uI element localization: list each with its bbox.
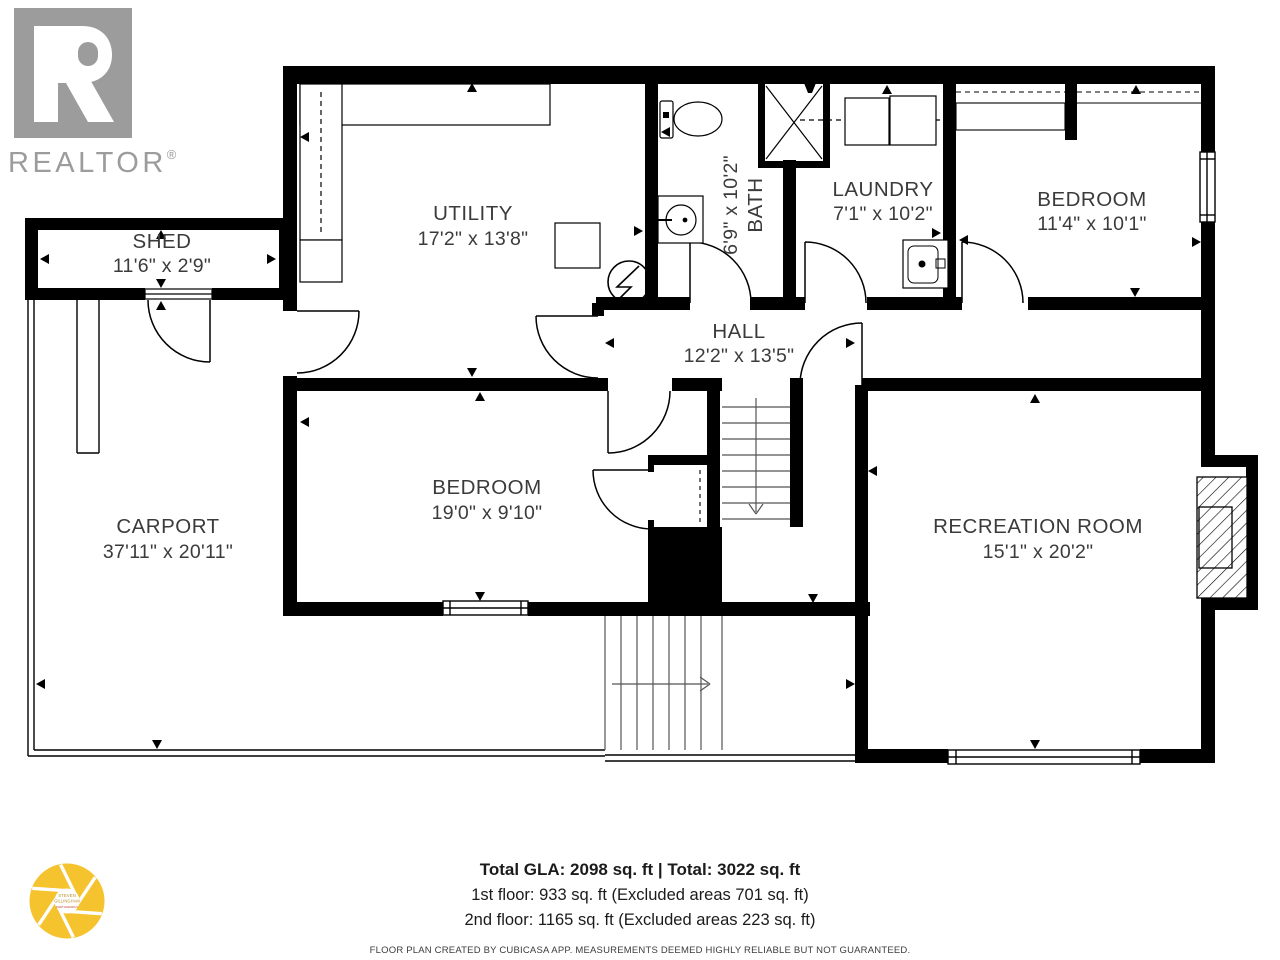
room-label-bedroom-upper: BEDROOM bbox=[1037, 188, 1146, 211]
room-dims-laundry: 7'1" x 10'2" bbox=[833, 203, 933, 225]
room-dims-hall: 12'2" x 13'5" bbox=[684, 345, 795, 367]
disclaimer: FLOOR PLAN CREATED BY CUBICASA APP. MEAS… bbox=[0, 945, 1280, 956]
window-bedroom-upper bbox=[1200, 152, 1215, 222]
bedroom-upper-closet bbox=[956, 92, 1201, 130]
realtor-logo: REALTOR® bbox=[6, 6, 176, 191]
area-summary: Total GLA: 2098 sq. ft | Total: 3022 sq.… bbox=[0, 860, 1280, 956]
room-label-hall: HALL bbox=[712, 320, 765, 343]
room-dims-shed: 11'6" x 2'9" bbox=[113, 255, 211, 277]
exterior-stairs bbox=[605, 616, 722, 750]
room-labels: SHED 11'6" x 2'9" UTILITY 17'2" x 13'8" … bbox=[103, 155, 1147, 563]
room-dims-bedroom-main: 19'0" x 9'10" bbox=[432, 502, 543, 524]
laundry-sink-icon bbox=[903, 240, 948, 288]
door-utility-hall bbox=[536, 316, 598, 378]
cabinet-box bbox=[300, 240, 342, 282]
room-dims-bedroom-upper: 11'4" x 10'1" bbox=[1037, 213, 1146, 235]
door-hall-recreation bbox=[800, 323, 862, 385]
stairs-down-arrow bbox=[749, 398, 763, 514]
room-label-laundry: LAUNDRY bbox=[832, 178, 933, 201]
dryer-icon bbox=[890, 96, 936, 145]
room-dims-carport: 37'11" x 20'11" bbox=[103, 541, 233, 563]
second-floor-area: 2nd floor: 1165 sq. ft (Excluded areas 2… bbox=[0, 911, 1280, 930]
door-bedroom-main bbox=[608, 391, 670, 453]
total-gla: Total GLA: 2098 sq. ft | Total: 3022 sq.… bbox=[0, 860, 1280, 880]
window-recreation bbox=[948, 750, 1140, 764]
realtor-wordmark: REALTOR® bbox=[8, 147, 176, 179]
first-floor-area: 1st floor: 933 sq. ft (Excluded areas 70… bbox=[0, 886, 1280, 905]
electrical-panel-icon bbox=[608, 261, 650, 303]
room-label-recreation: RECREATION ROOM bbox=[933, 515, 1143, 538]
room-label-utility: UTILITY bbox=[433, 202, 513, 225]
appliance bbox=[555, 223, 600, 268]
room-label-bath: BATH bbox=[744, 177, 767, 232]
sink-icon bbox=[658, 196, 703, 243]
utility-fixtures bbox=[300, 84, 650, 303]
stairs-right-arrow bbox=[612, 677, 710, 691]
measure-arrows bbox=[36, 83, 1201, 749]
room-label-shed: SHED bbox=[133, 230, 192, 253]
room-dims-bath: 6'9" x 10'2" bbox=[720, 155, 742, 255]
door-carport-utility bbox=[297, 311, 359, 373]
room-dims-utility: 17'2" x 13'8" bbox=[418, 228, 529, 250]
door-laundry bbox=[805, 242, 866, 303]
door-closet bbox=[593, 470, 652, 529]
washer-icon bbox=[845, 98, 889, 145]
walls bbox=[25, 66, 1258, 763]
interior-stairs bbox=[722, 398, 790, 519]
room-label-carport: CARPORT bbox=[116, 515, 219, 538]
fireplace-icon bbox=[1197, 477, 1247, 598]
room-dims-recreation: 15'1" x 20'2" bbox=[983, 541, 1094, 563]
shower-icon bbox=[766, 86, 822, 159]
tall-cabinet bbox=[300, 84, 342, 240]
window-bedroom-main bbox=[443, 601, 528, 615]
door-bedroom-upper bbox=[962, 242, 1023, 303]
shed-opening bbox=[145, 289, 212, 299]
room-label-bedroom-main: BEDROOM bbox=[432, 476, 541, 499]
floor-plan: SHED 11'6" x 2'9" UTILITY 17'2" x 13'8" … bbox=[0, 0, 1280, 960]
